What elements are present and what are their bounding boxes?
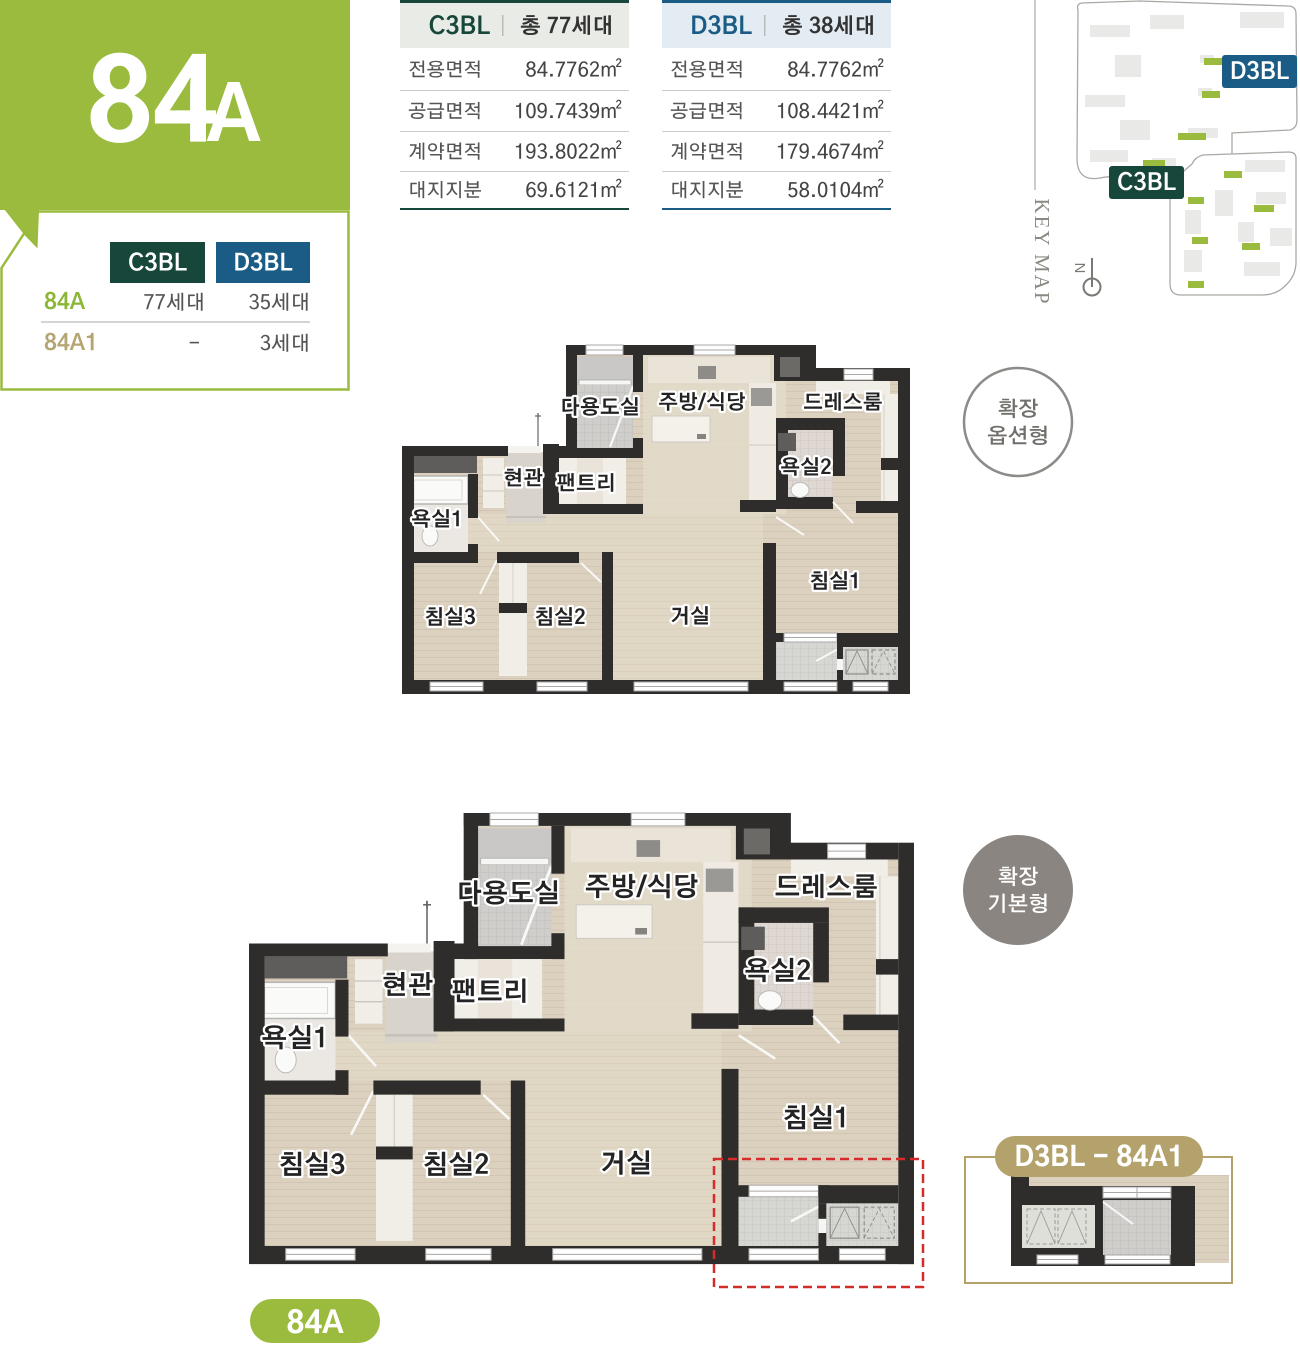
svg-text:N: N bbox=[1072, 263, 1089, 274]
svg-text:KEY MAP: KEY MAP bbox=[1030, 198, 1054, 305]
